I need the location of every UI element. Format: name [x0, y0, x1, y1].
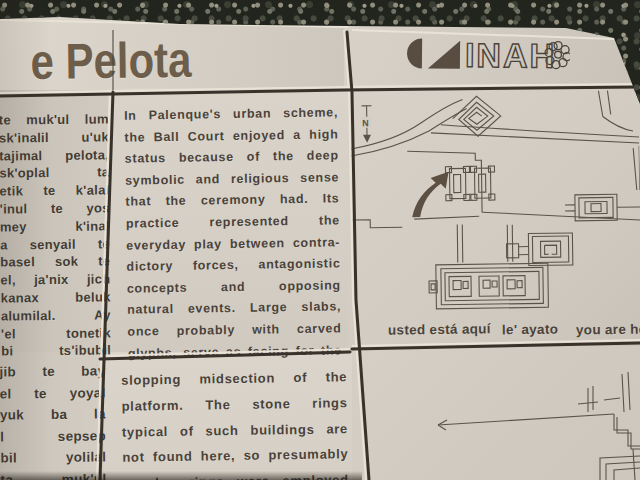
- text-line: platform. The stone rings: [121, 390, 347, 419]
- text-line: sk'inalil u'uk: [0, 128, 109, 147]
- logo-halfdisc-icon: [407, 38, 422, 68]
- text-line: status because of the deep: [125, 146, 339, 171]
- logo-triangle-icon: [428, 40, 460, 68]
- logo-letters: INAH: [465, 36, 556, 75]
- page-title: e Pelota: [30, 31, 192, 91]
- mayan-text-panel-upper: te muk'ul lumsk'inalil u'uktajimal pelot…: [0, 110, 111, 360]
- text-line: a senyail te: [0, 235, 110, 254]
- text-line: el, ja'nix jich: [0, 271, 110, 290]
- text-line: te muk'ul lum: [0, 110, 109, 129]
- you-are-here-arrow-icon: [412, 172, 450, 218]
- small-temple: [506, 233, 572, 266]
- text-line: basel sok te: [0, 253, 110, 272]
- caption-english: you are here: [576, 321, 640, 337]
- bottom-edge-shadow: [0, 471, 362, 480]
- text-line: kanax beluk: [1, 288, 111, 307]
- text-line: alumilal. Ay: [1, 306, 111, 325]
- text-line: bil yolilal: [0, 446, 106, 469]
- text-line: once probably with carved: [127, 318, 341, 343]
- text-line: mey k'inal: [0, 217, 110, 236]
- mayan-text-panel-lower: jib te bayel te yoyalyuk ba lal sepsepbi…: [0, 360, 107, 480]
- ballcourt-structures: [445, 166, 494, 201]
- text-line: el te yoyal: [0, 382, 106, 405]
- text-line: 'el tonetik: [1, 324, 111, 343]
- caption-mayan: le' ayato: [502, 322, 558, 338]
- site-map-drawing-lower: [352, 352, 640, 480]
- text-line: jib te bay: [0, 360, 106, 383]
- text-line: In Palenque's urban scheme,: [124, 102, 338, 127]
- inah-logo-icon: INAH: [402, 35, 570, 76]
- palace-complex: [429, 263, 549, 309]
- map-roads: [350, 90, 639, 194]
- north-label: N: [362, 118, 369, 128]
- text-line: glyphs, serve as facing for the: [128, 340, 342, 365]
- map-path-line: [438, 414, 614, 425]
- north-arrow-icon: N: [362, 106, 373, 143]
- text-line: slopping midsection of the: [121, 364, 347, 393]
- text-line: etik te k'alal: [0, 182, 110, 201]
- english-text-panel-lower: slopping midsection of theplatform. The …: [121, 364, 349, 480]
- text-line: typical of such buildings are: [122, 416, 348, 445]
- text-line: tajimal pelota,: [0, 146, 109, 165]
- english-text-panel-upper: In Palenque's urban scheme,the Ball Cour…: [124, 102, 342, 364]
- caption-spanish: usted está aquí: [388, 321, 491, 337]
- text-line: l sepsep: [0, 425, 106, 448]
- text-line: sk'oplal ta: [0, 164, 109, 183]
- text-line: bi ts'ibubil: [1, 342, 111, 361]
- text-line: dictory forces, antagonistic: [126, 253, 340, 278]
- text-line: practice represented the: [126, 210, 340, 235]
- text-line: not found here, so presumably: [122, 442, 348, 471]
- text-line: yuk ba la: [0, 403, 106, 426]
- spiral-structure: [452, 96, 501, 137]
- plaque-photo: e Pelota INAH te muk'ul lumsk'inalil u'u…: [0, 0, 640, 480]
- site-map-drawing: N: [350, 90, 640, 322]
- text-line: 'inul te yos: [0, 199, 110, 218]
- map-paths: [351, 148, 640, 264]
